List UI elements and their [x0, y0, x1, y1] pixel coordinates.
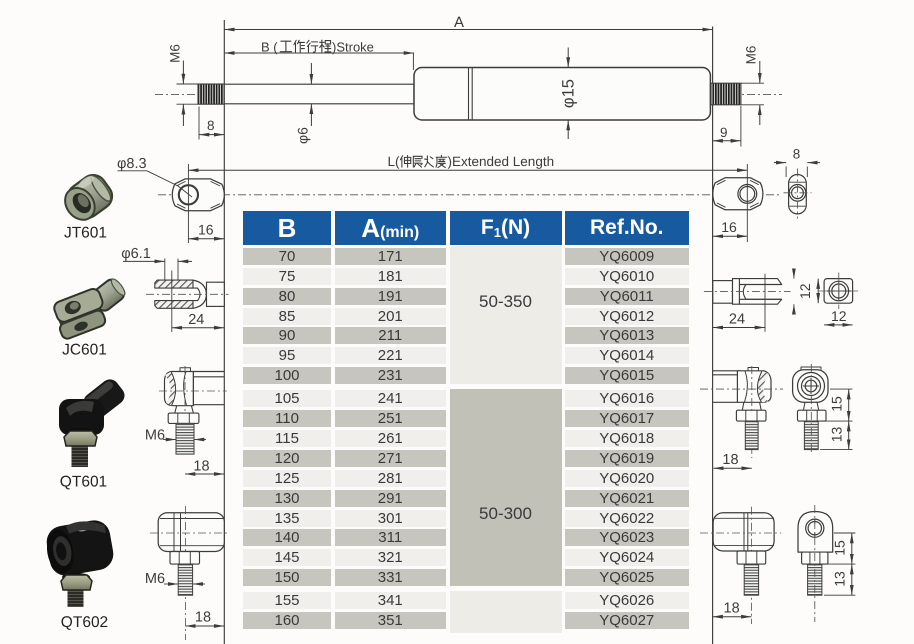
svg-text:24: 24 [729, 312, 745, 328]
svg-text:15: 15 [832, 540, 848, 556]
svg-text:8: 8 [793, 147, 801, 162]
svg-text:φ8.3: φ8.3 [117, 156, 147, 172]
svg-text:M6: M6 [168, 44, 183, 63]
svg-text:18: 18 [193, 459, 209, 475]
svg-text:QT601: QT601 [60, 474, 107, 491]
svg-text:)Stroke: )Stroke [332, 40, 374, 55]
svg-text:24: 24 [188, 312, 204, 328]
svg-text:18: 18 [195, 610, 211, 626]
svg-text:13: 13 [829, 427, 845, 443]
svg-text:8: 8 [207, 118, 215, 133]
svg-text:JC601: JC601 [62, 342, 107, 359]
svg-text:15: 15 [829, 396, 845, 412]
svg-text:12: 12 [797, 283, 813, 299]
svg-text:φ15: φ15 [560, 79, 578, 108]
svg-text:18: 18 [722, 452, 738, 468]
svg-text:M6: M6 [744, 46, 759, 65]
svg-text:φ6.1: φ6.1 [121, 246, 151, 262]
svg-text:18: 18 [724, 601, 740, 617]
svg-text:QT602: QT602 [61, 614, 108, 631]
svg-text:L(: L( [388, 154, 401, 169]
svg-text:16: 16 [721, 219, 737, 235]
svg-text:)Extended Length: )Extended Length [448, 154, 555, 169]
svg-text:A: A [454, 14, 464, 31]
svg-text:M6: M6 [145, 428, 165, 444]
svg-text:JT601: JT601 [64, 225, 107, 242]
svg-text:φ6: φ6 [295, 127, 311, 144]
svg-text:B (: B ( [261, 40, 278, 55]
svg-text:M6: M6 [145, 571, 165, 587]
svg-text:13: 13 [832, 571, 848, 587]
svg-text:9: 9 [720, 125, 728, 140]
svg-text:12: 12 [831, 308, 847, 324]
svg-text:16: 16 [198, 222, 214, 238]
